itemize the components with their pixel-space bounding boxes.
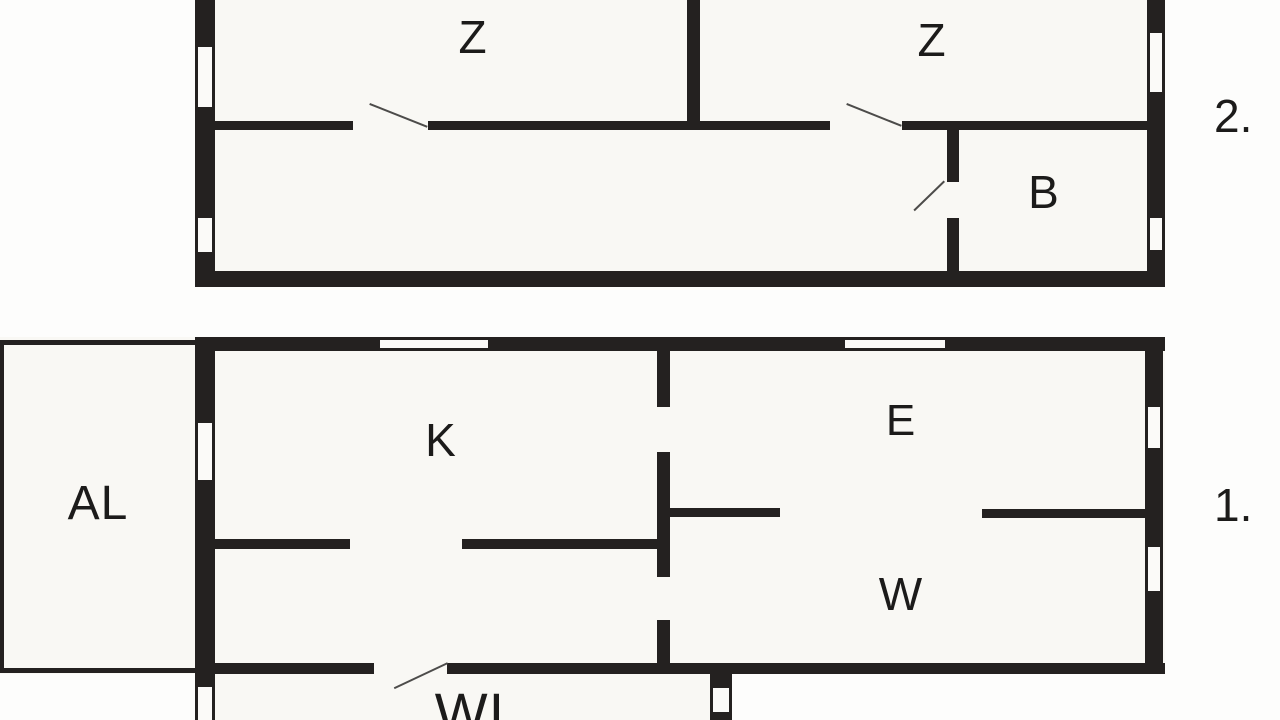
window-opening <box>1145 547 1163 591</box>
window-opening <box>195 423 215 480</box>
wall-segment <box>195 663 374 674</box>
wall-segment <box>428 121 830 130</box>
room-label: K <box>425 417 457 463</box>
window-opening <box>1147 33 1165 92</box>
wall-segment <box>0 340 4 673</box>
wall-segment <box>1145 337 1163 674</box>
wall-segment <box>215 121 353 130</box>
wall-segment <box>215 539 350 549</box>
window-opening <box>845 337 945 351</box>
wall-segment <box>657 452 670 577</box>
room-label: AL <box>68 480 129 528</box>
wall-segment <box>462 539 670 549</box>
floor-area <box>0 337 1165 674</box>
wall-segment <box>195 337 215 687</box>
wall-segment <box>0 340 195 345</box>
wall-segment <box>687 0 700 127</box>
wall-segment <box>732 663 1165 674</box>
wall-segment <box>195 271 1165 287</box>
room-label: W <box>879 571 923 617</box>
wall-segment <box>657 337 670 407</box>
window-opening <box>195 218 215 252</box>
floor-label-second: 2. <box>1214 93 1252 139</box>
floor-label-first: 1. <box>1214 482 1252 528</box>
wall-segment <box>447 663 710 674</box>
floor-area <box>195 0 1165 287</box>
window-opening <box>1145 407 1163 448</box>
floor-plan: ZZBALKEWWI 2. 1. <box>0 0 1280 720</box>
wall-segment <box>657 620 670 665</box>
room-label: B <box>1028 169 1060 215</box>
wall-segment <box>0 668 195 673</box>
wall-segment <box>947 218 959 273</box>
window-opening <box>195 47 215 107</box>
wall-segment <box>670 508 780 517</box>
wall-segment <box>902 121 1147 130</box>
window-opening <box>710 688 732 712</box>
room-label: E <box>886 399 916 443</box>
wall-segment <box>947 121 959 182</box>
window-opening <box>380 337 488 351</box>
room-label: Z <box>458 14 487 60</box>
window-opening <box>1147 218 1165 250</box>
room-label: WI <box>435 685 505 720</box>
wall-segment <box>195 337 1165 351</box>
window-opening <box>195 687 215 720</box>
wall-segment <box>982 509 1147 518</box>
room-label: Z <box>917 17 946 63</box>
